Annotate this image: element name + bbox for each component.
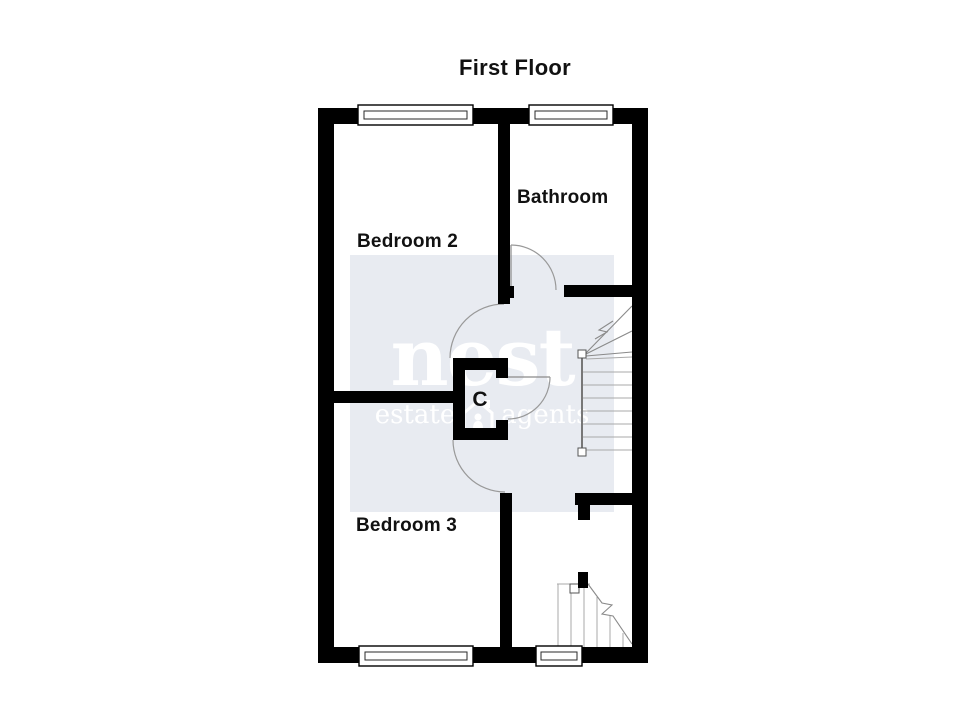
- window-bedroom2: [358, 105, 473, 125]
- bathroom-door: [511, 245, 556, 290]
- lower-stair-post: [570, 584, 579, 593]
- handrail-post-bottom: [578, 448, 586, 456]
- landing-stub-wall-h: [575, 493, 632, 505]
- room-label-bedroom2: Bedroom 2: [357, 231, 458, 253]
- plan-title: First Floor: [320, 55, 710, 81]
- landing-stub-wall-v: [578, 505, 590, 520]
- cupboard-wall-left: [453, 358, 465, 440]
- room-label-bathroom: Bathroom: [517, 187, 608, 209]
- wall-right: [632, 108, 648, 663]
- cupboard-jamb-bottom: [496, 420, 508, 440]
- stair-winder-lines: [586, 306, 632, 356]
- handrail-post-top: [578, 350, 586, 358]
- lower-stair-stub-wall: [578, 572, 588, 588]
- staircase-lower: [557, 584, 632, 647]
- window-bedroom3: [359, 646, 473, 666]
- window-bathroom: [529, 105, 613, 125]
- bathroom-door-jamb: [506, 286, 514, 298]
- room-label-cupboard: C: [468, 388, 492, 412]
- cupboard-door: [508, 377, 550, 419]
- bedroom3-hall-wall: [500, 493, 512, 647]
- bedroom3-door: [453, 440, 505, 492]
- window-landing: [536, 646, 582, 666]
- bathroom-left-wall: [498, 124, 510, 304]
- bedroom2-door: [450, 304, 504, 358]
- bedroom-divider-wall: [334, 391, 454, 403]
- wall-left: [318, 108, 334, 663]
- staircase-upper: [578, 306, 632, 456]
- bathroom-bottom-wall: [564, 285, 632, 297]
- floor-plan-drawing: [0, 0, 980, 712]
- stair-direction-zigzag: [595, 321, 613, 339]
- room-label-bedroom3: Bedroom 3: [356, 515, 457, 537]
- cupboard-jamb-top: [496, 358, 508, 378]
- floor-plan-canvas: nest estate agents: [0, 0, 980, 712]
